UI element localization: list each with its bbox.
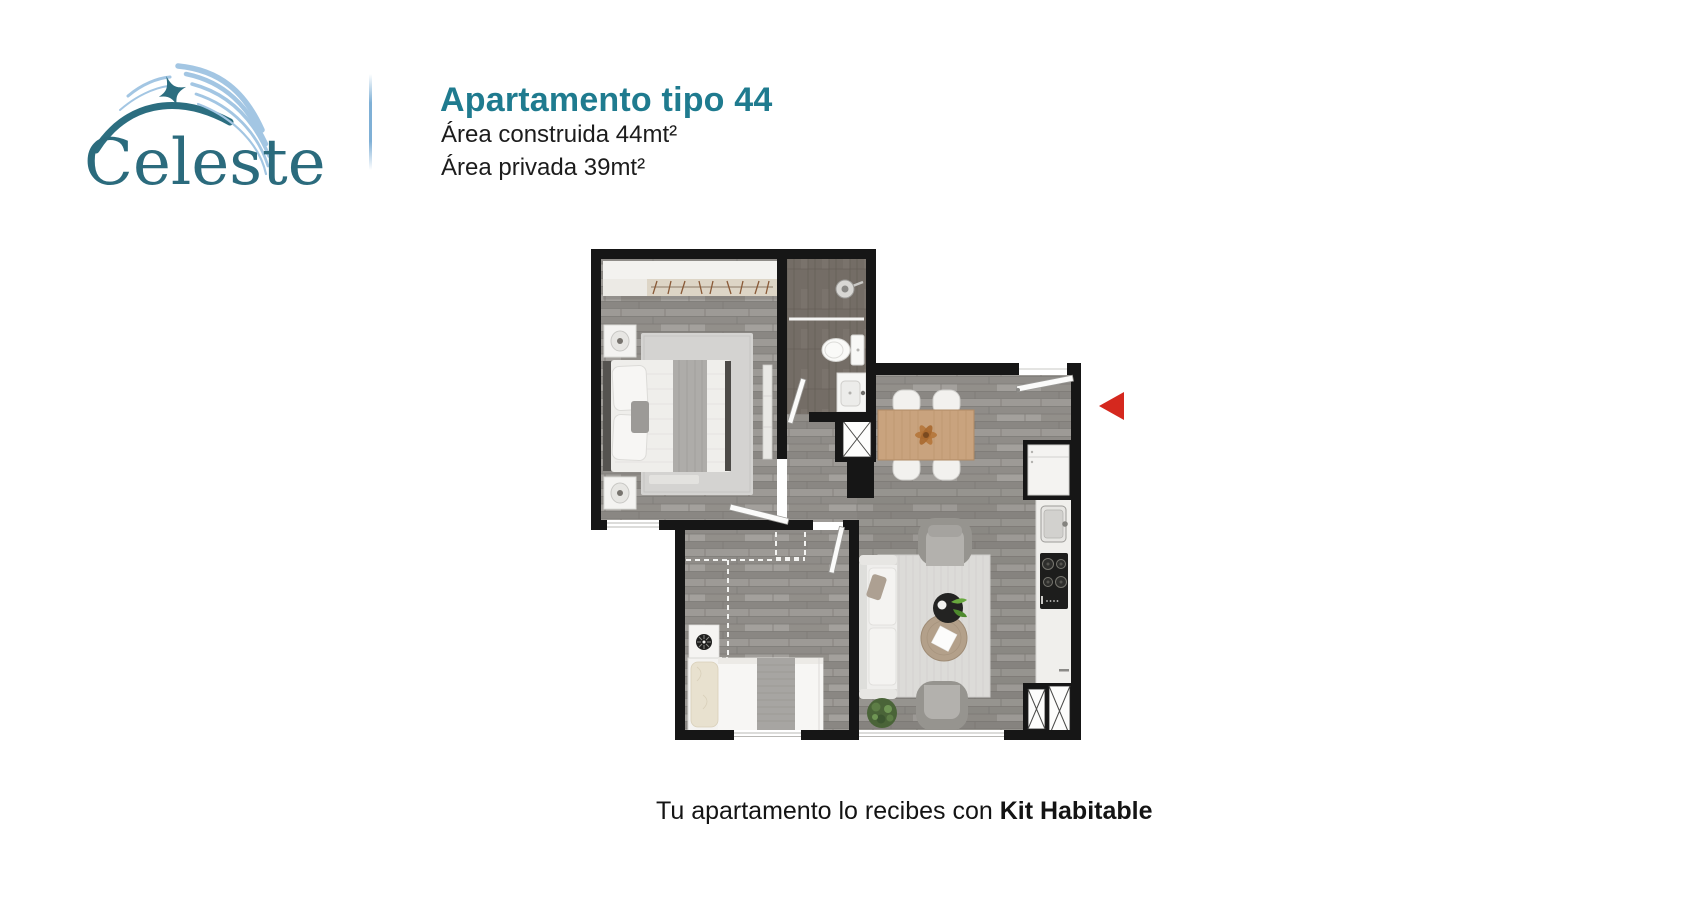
bed-bench [649, 475, 699, 484]
single-bed [688, 658, 823, 731]
plant [867, 698, 897, 728]
footer-highlight: Kit Habitable [1000, 797, 1153, 825]
sofa [859, 555, 897, 699]
armchair-bottom [916, 681, 968, 731]
area-built-label: Área construida 44mt² [441, 121, 677, 149]
dining-table [878, 410, 974, 460]
kit-habitable-note: Tu apartamento lo recibes con Kit Habita… [656, 797, 1153, 826]
logo-wordmark: Celeste [84, 126, 326, 200]
floor-plan [591, 249, 1081, 740]
area-private-label: Área privada 39mt² [441, 154, 645, 182]
double-bed [603, 360, 731, 472]
fridge [1023, 440, 1073, 500]
closet [603, 261, 777, 300]
dresser [763, 365, 772, 459]
footer-prefix: Tu apartamento lo recibes con [656, 797, 1000, 825]
sink-vanity [837, 373, 866, 412]
entrance-arrow-icon [1096, 390, 1126, 422]
nightstand-bottom [604, 477, 636, 509]
page-title: Apartamento tipo 44 [440, 81, 773, 120]
celeste-logo: Celeste [70, 44, 330, 204]
header-divider [369, 74, 372, 170]
stove [1040, 553, 1068, 609]
armchair-top [918, 518, 972, 566]
kitchen-sink [1041, 506, 1068, 542]
nightstand-top [604, 325, 636, 357]
desk [689, 625, 719, 659]
slide-canvas: Celeste Apartamento tipo 44 Área constru… [0, 0, 1701, 900]
